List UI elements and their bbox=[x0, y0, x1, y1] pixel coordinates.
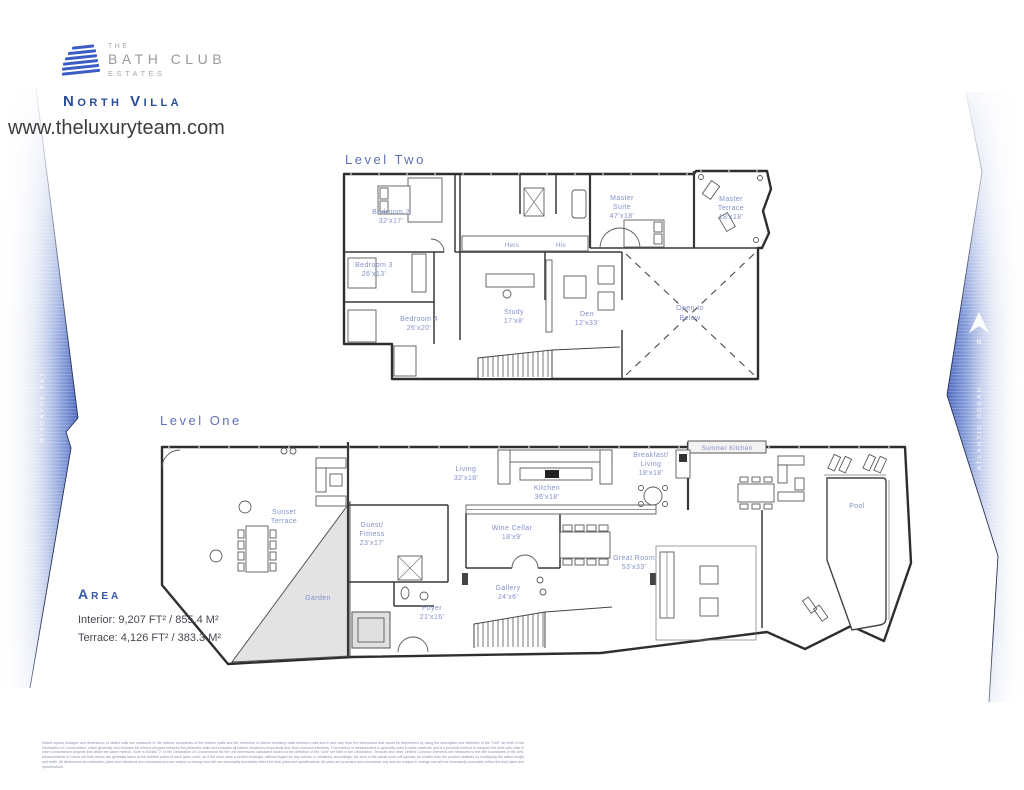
label-open-to-below: Below bbox=[679, 315, 701, 322]
label-bedroom3: 26'x13' bbox=[362, 271, 387, 278]
label-master-suite: 47'x18' bbox=[610, 213, 635, 220]
level-one-title: Level One bbox=[160, 413, 242, 428]
level-two-floor-plan: Bedroom 2 32'x17' Bedroom 3 26'x13' Bedr… bbox=[340, 168, 782, 390]
label-gallery: 24'x6' bbox=[498, 594, 518, 601]
label-den: Den bbox=[580, 311, 594, 318]
label-master-terrace: Master bbox=[719, 196, 743, 203]
label-bedroom4: Bedroom 4 bbox=[400, 316, 438, 323]
atlantic-ocean-label: ATLANTIC OCEAN bbox=[977, 386, 983, 470]
label-hers: Hers bbox=[505, 242, 520, 249]
disclaimer-text: Stated square footages and dimensions of… bbox=[42, 741, 524, 769]
biscayne-bay-label: BISCAYNE BAY bbox=[40, 371, 46, 442]
brochure-page: BISCAYNE BAY bbox=[0, 0, 1024, 790]
area-heading: Area bbox=[78, 586, 221, 602]
label-master-terrace: 18'x18' bbox=[719, 214, 744, 221]
label-open-to-below: Open to bbox=[676, 305, 704, 312]
label-foyer: 21'x16' bbox=[420, 614, 445, 621]
label-den: 12'x33' bbox=[575, 320, 600, 327]
logo-bath-club: BATH CLUB bbox=[108, 51, 226, 67]
atlantic-ocean-ribbon: N ATLANTIC OCEAN bbox=[934, 80, 1024, 790]
label-great-room: Great Room bbox=[613, 555, 655, 562]
label-kitchen: Kitchen bbox=[534, 485, 560, 492]
label-bedroom4: 26'x20' bbox=[407, 325, 432, 332]
label-guest-fitness: Guest/ bbox=[360, 522, 383, 529]
label-pool: Pool bbox=[849, 503, 865, 510]
level-two-title: Level Two bbox=[345, 152, 426, 167]
label-kitchen: 36'x18' bbox=[535, 494, 560, 501]
label-garden: Garden bbox=[305, 595, 331, 602]
label-master-terrace: Terrace bbox=[718, 205, 744, 212]
bath-club-logo-icon bbox=[60, 40, 104, 80]
brand-logo: THE BATH CLUB ESTATES bbox=[60, 40, 226, 80]
area-terrace: Terrace: 4,126 FT² / 383.3 M² bbox=[78, 632, 221, 644]
label-guest-fitness: Fitness bbox=[359, 531, 384, 538]
compass-n-label: N bbox=[977, 339, 982, 346]
label-guest-fitness: 23'x17' bbox=[360, 540, 385, 547]
label-study: 17'x8' bbox=[504, 318, 524, 325]
label-bedroom2: 32'x17' bbox=[379, 218, 404, 225]
logo-the: THE bbox=[108, 43, 226, 50]
label-wine-cellar: Wine Cellar bbox=[492, 525, 533, 532]
label-sunset-terrace: Terrace bbox=[271, 518, 297, 525]
label-bedroom3: Bedroom 3 bbox=[355, 262, 393, 269]
label-living: Living bbox=[456, 466, 477, 473]
biscayne-bay-ribbon: BISCAYNE BAY bbox=[0, 80, 90, 790]
label-great-room: 53'x33' bbox=[622, 564, 647, 571]
label-breakfast-living: 18'x18' bbox=[639, 470, 664, 477]
label-wine-cellar: 18'x9' bbox=[502, 534, 522, 541]
level-one-floor-plan: Sunset Terrace Garden Guest/ Fitness 23'… bbox=[155, 433, 920, 673]
label-his: His bbox=[556, 242, 566, 249]
villa-name: North Villa bbox=[63, 93, 182, 110]
label-bedroom2: Bedroom 2 bbox=[372, 209, 410, 216]
label-foyer: Foyer bbox=[422, 605, 442, 612]
label-gallery: Gallery bbox=[496, 585, 521, 592]
label-summer-kitchen: Summer Kitchen bbox=[702, 445, 753, 452]
area-interior: Interior: 9,207 FT² / 855.4 M² bbox=[78, 614, 221, 626]
label-living: 32'x18' bbox=[454, 475, 479, 482]
label-master-suite: Suite bbox=[613, 204, 631, 211]
label-breakfast-living: Breakfast/ bbox=[633, 452, 669, 459]
website-url: www.theluxuryteam.com bbox=[8, 117, 225, 140]
area-section: Area Interior: 9,207 FT² / 855.4 M² Terr… bbox=[78, 586, 221, 644]
label-master-suite: Master bbox=[610, 195, 634, 202]
label-sunset-terrace: Sunset bbox=[272, 509, 296, 516]
label-breakfast-living: Living bbox=[641, 461, 662, 468]
label-study: Study bbox=[504, 309, 524, 316]
logo-estates: ESTATES bbox=[108, 69, 226, 78]
